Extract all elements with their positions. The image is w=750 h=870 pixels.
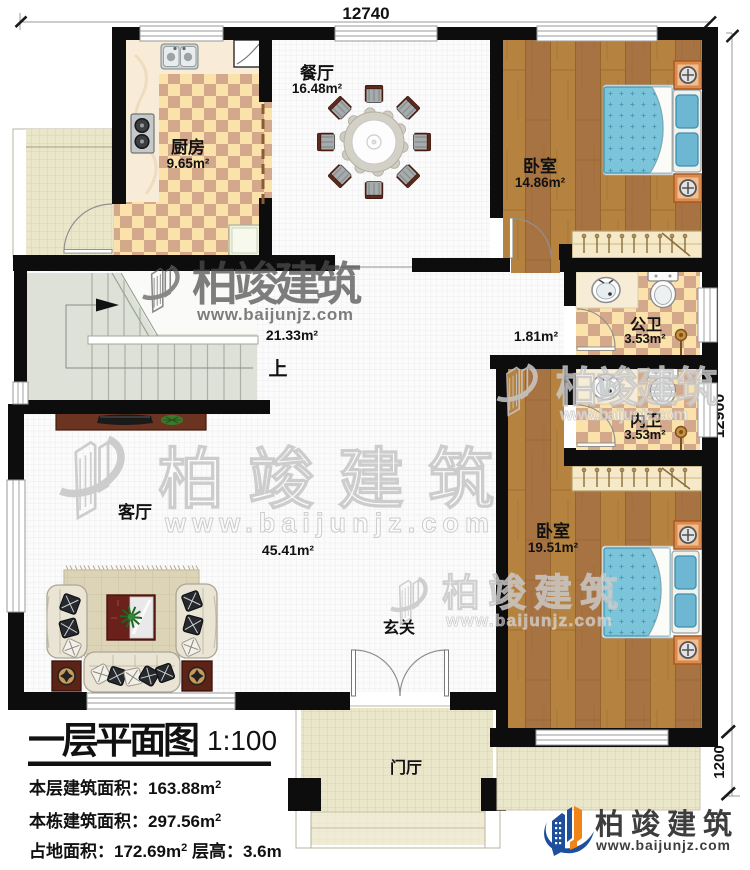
svg-text:14.86m²: 14.86m² bbox=[515, 175, 566, 190]
svg-text:厨房: 厨房 bbox=[171, 137, 205, 157]
svg-text:45.41m²: 45.41m² bbox=[262, 542, 314, 558]
svg-text:3.53m²: 3.53m² bbox=[624, 427, 666, 442]
svg-text:9.65m²: 9.65m² bbox=[167, 156, 210, 171]
svg-text:16.48m²: 16.48m² bbox=[292, 81, 343, 96]
svg-text:本层建筑面积：163.88m2: 本层建筑面积：163.88m2 bbox=[29, 778, 221, 798]
svg-text:12740: 12740 bbox=[342, 4, 389, 23]
svg-text:www.baijunjz.com: www.baijunjz.com bbox=[595, 837, 730, 853]
svg-text:卧室: 卧室 bbox=[523, 156, 557, 176]
svg-text:www.baijunjz.com: www.baijunjz.com bbox=[196, 305, 353, 324]
svg-text:柏竣建筑: 柏竣建筑 bbox=[556, 364, 718, 411]
svg-text:上: 上 bbox=[268, 358, 287, 380]
svg-text:占地面积：172.69m2 层高：3.6m: 占地面积：172.69m2 层高：3.6m bbox=[29, 841, 282, 861]
svg-text:柏竣建筑: 柏竣建筑 bbox=[192, 258, 362, 310]
svg-text:1200: 1200 bbox=[711, 745, 728, 778]
svg-text:玄关: 玄关 bbox=[383, 618, 415, 637]
svg-text:客厅: 客厅 bbox=[117, 502, 152, 522]
svg-text:21.33m²: 21.33m² bbox=[266, 327, 318, 343]
svg-text:本栋建筑面积：297.56m2: 本栋建筑面积：297.56m2 bbox=[29, 811, 221, 831]
svg-text:餐厅: 餐厅 bbox=[300, 63, 334, 83]
svg-text:1.81m²: 1.81m² bbox=[514, 328, 559, 344]
svg-text:www.baijunjz.com: www.baijunjz.com bbox=[559, 406, 688, 424]
svg-text:一层平面图: 一层平面图 bbox=[28, 720, 200, 761]
svg-text:www.baijunjz.com: www.baijunjz.com bbox=[445, 611, 612, 630]
svg-text:19.51m²: 19.51m² bbox=[528, 540, 579, 555]
svg-text:1:100: 1:100 bbox=[207, 725, 277, 756]
svg-text:卧室: 卧室 bbox=[536, 521, 570, 541]
svg-text:3.53m²: 3.53m² bbox=[624, 331, 666, 346]
svg-text:门厅: 门厅 bbox=[390, 758, 422, 777]
